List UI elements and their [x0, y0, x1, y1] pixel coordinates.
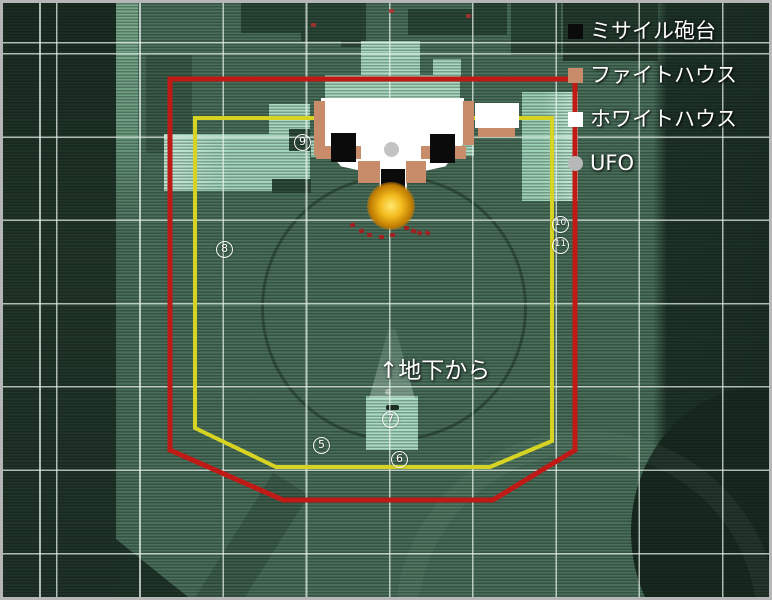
fight-house-swatch-icon	[568, 68, 583, 83]
white-annex	[475, 103, 519, 128]
red-mark	[411, 229, 417, 234]
legend-label: UFO	[590, 153, 634, 174]
map-marker-7: 7	[382, 411, 399, 428]
legend-label: ファイトハウス	[590, 65, 737, 86]
legend-label: ホワイトハウス	[590, 109, 737, 130]
fight-house	[478, 128, 515, 137]
map-marker-6: 6	[391, 451, 408, 468]
ufo	[384, 142, 399, 157]
underground-direction-label: ↑地下から	[379, 359, 490, 384]
white-house-swatch-icon	[568, 112, 583, 127]
red-mark	[367, 233, 372, 237]
red-mark	[379, 235, 384, 239]
legend-item-fight-house: ファイトハウス	[568, 64, 737, 87]
map-marker-9: 9	[294, 134, 311, 151]
legend-item-white-house: ホワイトハウス	[568, 108, 737, 131]
red-dot	[466, 14, 471, 18]
map-screenshot: ミサイル砲台 ファイトハウス ホワイトハウス UFO 5 6 7 8 9 10 …	[0, 0, 772, 600]
missile-battery	[331, 133, 356, 162]
fight-house	[358, 161, 380, 183]
energy-orb	[367, 182, 415, 230]
red-dot	[311, 23, 316, 27]
missile-battery-swatch-icon	[568, 24, 583, 39]
ufo-swatch-icon	[568, 156, 583, 171]
legend-item-ufo: UFO	[568, 152, 737, 175]
map-marker-10: 10	[552, 216, 569, 233]
red-mark	[404, 226, 410, 231]
map-marker-8: 8	[216, 241, 233, 258]
legend-item-missile-battery: ミサイル砲台	[568, 20, 737, 43]
legend: ミサイル砲台 ファイトハウス ホワイトハウス UFO	[568, 20, 737, 175]
red-mark	[390, 233, 395, 237]
map-marker-5: 5	[313, 437, 330, 454]
fight-house	[406, 161, 426, 183]
red-dot	[389, 9, 394, 13]
legend-label: ミサイル砲台	[590, 21, 716, 42]
missile-battery	[430, 134, 455, 163]
fight-house	[463, 101, 474, 145]
map-marker-11: 11	[552, 237, 569, 254]
